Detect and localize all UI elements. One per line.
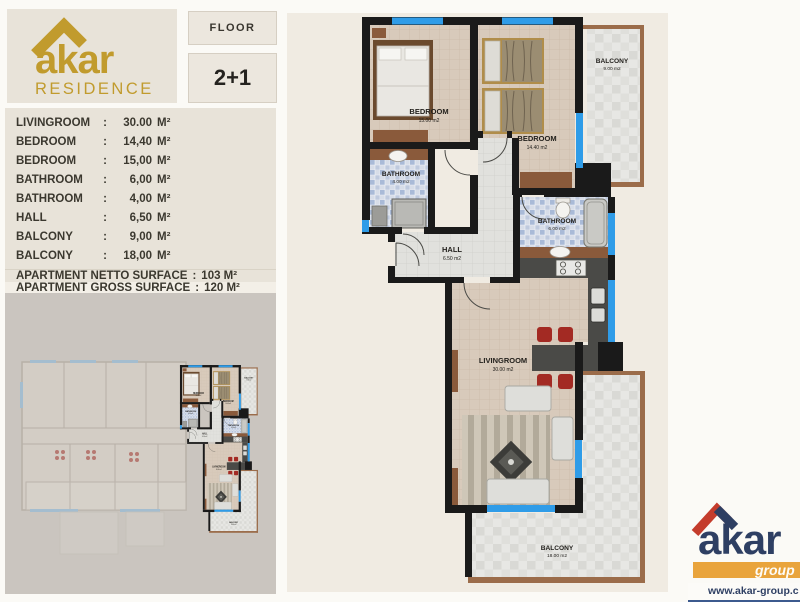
netto-surface-value: 103 M² [196, 270, 237, 282]
room-list: LIVINGROOM:30.00M² BEDROOM:14,40M² BEDRO… [5, 108, 276, 269]
bathroom-big-label: BATHROOM [538, 218, 577, 225]
bathroom-small-area: 4.00 m2 [392, 179, 410, 185]
sink-big [550, 247, 570, 258]
balcony-top-floor [587, 29, 640, 182]
hall-area: 6.50 m2 [443, 256, 461, 262]
bathroom-small-label: BATHROOM [382, 171, 421, 178]
sofa-bottom [487, 479, 549, 504]
floorplan-flyer: { "brand": { "name": "akar", "subtitle":… [0, 0, 800, 600]
footer-group-banner: group [693, 562, 800, 578]
wardrobe-b [520, 172, 572, 188]
floor-overview-map [5, 293, 276, 594]
stove [556, 260, 586, 276]
balcony-top-label: BALCONY [596, 58, 629, 65]
footer-group-label: group [755, 562, 795, 578]
sink-small [389, 151, 407, 162]
toilet [556, 198, 570, 218]
footer-website-strip: www.akar-group.c [688, 583, 800, 602]
washer [372, 206, 387, 226]
floor-label-box: FLOOR [188, 11, 277, 45]
brand-subtitle: RESIDENCE [35, 80, 154, 98]
netto-surface-row: APARTMENT NETTO SURFACE:103 M² [5, 269, 276, 282]
balcony-bottom-label: BALCONY [541, 545, 574, 552]
single-bed-2 [482, 88, 544, 134]
footer-logo: akar [690, 497, 800, 559]
bedroom-b-label: BEDROOM [517, 134, 556, 143]
bedroom-b-area: 14.40 m2 [527, 145, 548, 151]
floor-overview-panel [5, 293, 276, 594]
single-bed-1 [482, 38, 544, 84]
room-row-bathroom-2: BATHROOM:4,00M² [5, 193, 276, 212]
brand-logo-panel: akar RESIDENCE [7, 9, 177, 103]
bathtub [584, 199, 607, 247]
room-list-panel: LIVINGROOM:30.00M² BEDROOM:14,40M² BEDRO… [5, 108, 276, 293]
shower [392, 199, 426, 228]
livingroom-area: 30.00 m2 [493, 367, 514, 373]
room-row-bathroom-1: BATHROOM:6,00M² [5, 174, 276, 193]
room-row-balcony-2: BALCONY:18,00M² [5, 250, 276, 269]
footer-website: www.akar-group.c [708, 585, 799, 597]
faded-building [20, 360, 186, 554]
room-row-bedroom-1: BEDROOM:14,40M² [5, 136, 276, 155]
highlighted-unit [180, 365, 258, 533]
room-row-balcony-1: BALCONY:9,00M² [5, 231, 276, 250]
unit-type-box: 2+1 [188, 53, 277, 103]
main-floorplan: BEDROOM 15.00 m2 BEDROOM 14.40 m2 BATHRO… [287, 13, 668, 592]
sofa-top [505, 386, 551, 411]
bedroom-a-area: 15.00 m2 [419, 118, 440, 124]
balcony-bottom-area: 18.00 m2 [547, 553, 567, 559]
room-row-bedroom-2: BEDROOM:15,00M² [5, 155, 276, 174]
footer-brand: akar [698, 516, 781, 559]
bathroom-big-area: 6.00 m2 [548, 226, 566, 232]
unit-type: 2+1 [214, 65, 251, 91]
armchair [552, 417, 573, 460]
floor-label: FLOOR [210, 22, 256, 34]
brand-name: akar [35, 38, 114, 82]
room-row-livingroom: LIVINGROOM:30.00M² [5, 117, 276, 136]
main-floorplan-panel: BEDROOM 15.00 m2 BEDROOM 14.40 m2 BATHRO… [287, 13, 668, 592]
bedroom-a-label: BEDROOM [409, 107, 448, 116]
room-row-hall: HALL:6,50M² [5, 212, 276, 231]
livingroom-label: LIVINGROOM [479, 356, 527, 365]
balcony-top-area: 9.00 m2 [603, 66, 621, 72]
hall-label: HALL [442, 245, 462, 254]
wardrobe-a [373, 130, 428, 142]
